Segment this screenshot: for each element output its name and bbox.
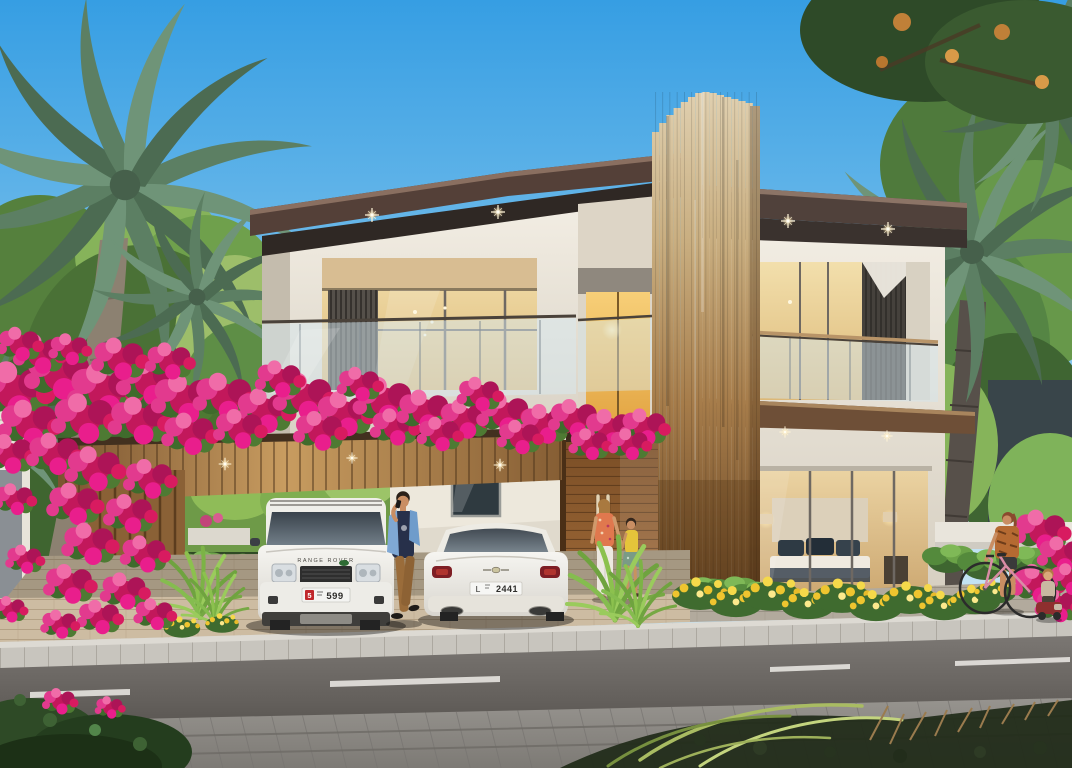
scene-canvas: RANGE ROVER 5 599 bbox=[0, 0, 1072, 768]
rr-mirror bbox=[250, 538, 260, 546]
rr-headlight bbox=[272, 564, 296, 582]
svg-text:5: 5 bbox=[307, 591, 311, 600]
balcony-right bbox=[748, 332, 938, 402]
toddler-top bbox=[1041, 581, 1055, 598]
bed-throw bbox=[770, 568, 870, 582]
bike-seat bbox=[997, 553, 1006, 557]
plate-number: 599 bbox=[326, 591, 343, 602]
pillow bbox=[836, 540, 860, 556]
rr-grille bbox=[300, 566, 352, 584]
rr-windshield bbox=[266, 512, 386, 548]
range-rover: RANGE ROVER 5 599 bbox=[246, 498, 406, 636]
nightstand bbox=[884, 556, 908, 584]
rr-license-plate: 5 599 bbox=[302, 588, 350, 602]
rr-headlight bbox=[356, 564, 380, 582]
land-rover-badge bbox=[339, 560, 349, 566]
headboard bbox=[772, 498, 868, 542]
bentley-license-plate: L 2441 bbox=[470, 582, 522, 595]
roller-shade bbox=[322, 258, 537, 290]
slat-tower bbox=[642, 92, 778, 615]
shoe bbox=[391, 613, 403, 619]
small-window bbox=[452, 480, 500, 516]
pillow bbox=[778, 540, 804, 556]
villa-rendering: RANGE ROVER 5 599 bbox=[0, 0, 1072, 768]
bentley-rear-window bbox=[443, 529, 549, 555]
plate-number: 2441 bbox=[496, 584, 518, 594]
plate-prefix: L bbox=[476, 584, 481, 594]
white-planter bbox=[188, 528, 250, 545]
